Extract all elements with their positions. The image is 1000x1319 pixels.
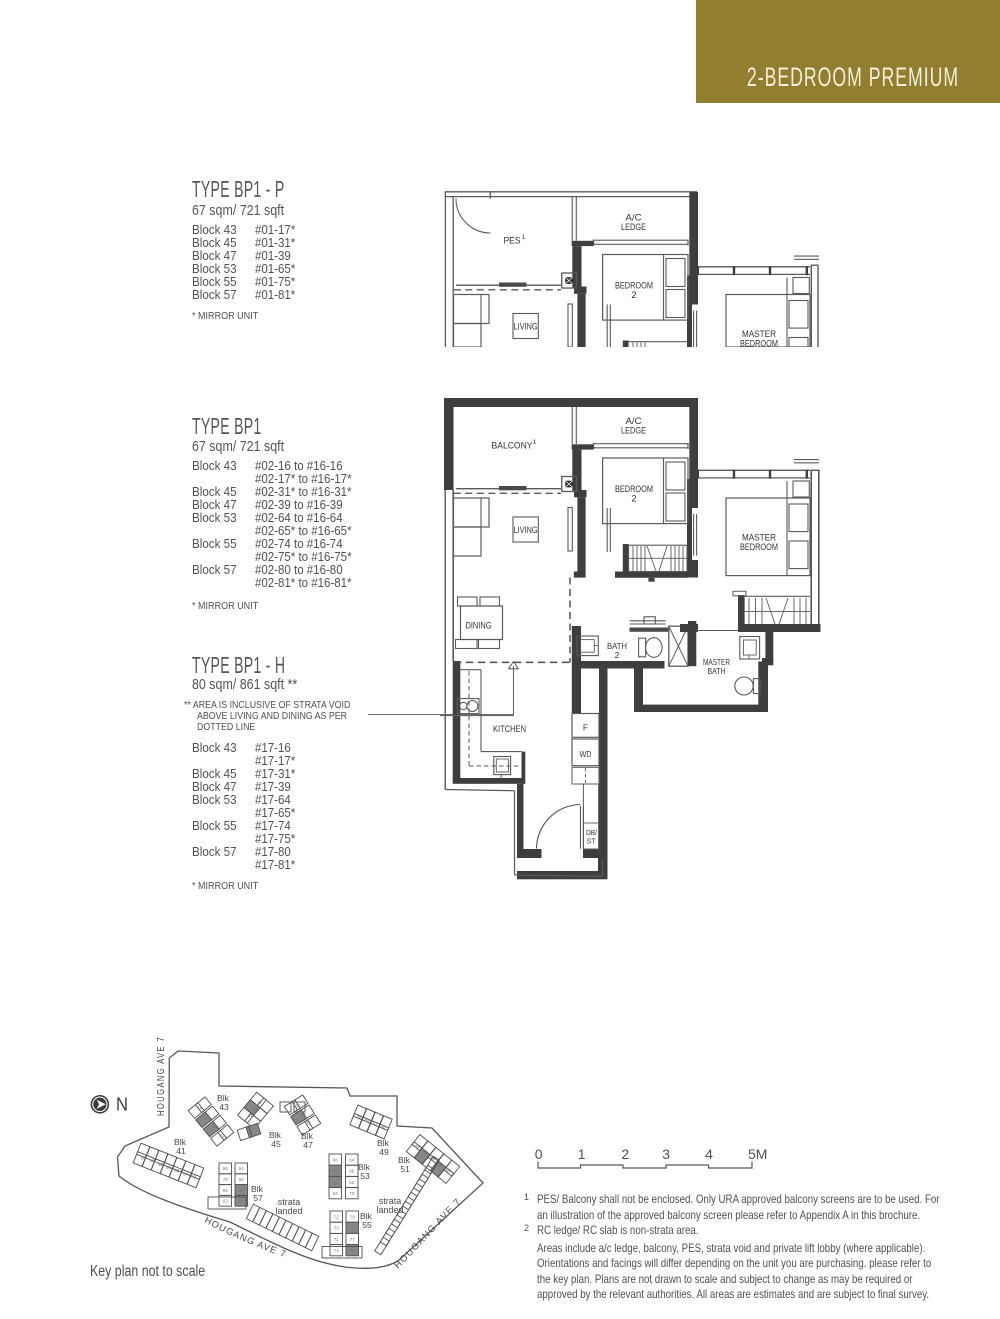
svg-text:0: 0: [535, 1146, 543, 1162]
svg-text:71: 71: [334, 1237, 340, 1242]
svg-text:LIVING: LIVING: [514, 525, 538, 535]
svg-text:36: 36: [295, 1103, 300, 1108]
svg-text:HOUGANG AVE 7: HOUGANG AVE 7: [203, 1215, 288, 1260]
svg-text:56: 56: [223, 1166, 229, 1171]
svg-text:5M: 5M: [748, 1146, 767, 1162]
svg-text:2: 2: [631, 290, 636, 300]
svg-text:BEDROOM: BEDROOM: [615, 484, 653, 494]
svg-text:38: 38: [301, 1112, 306, 1117]
svg-text:44: 44: [357, 1115, 362, 1120]
svg-text:2: 2: [631, 494, 636, 504]
svg-text:67: 67: [239, 1199, 245, 1204]
svg-text:A/C: A/C: [626, 416, 642, 426]
svg-text:2: 2: [621, 1146, 629, 1162]
svg-text:66: 66: [333, 1158, 339, 1163]
svg-text:landed: landed: [376, 1205, 403, 1215]
svg-text:47: 47: [303, 1140, 313, 1150]
svg-text:48: 48: [381, 1124, 386, 1129]
svg-text:15: 15: [205, 1115, 210, 1120]
svg-text:LEDGE: LEDGE: [621, 222, 646, 232]
svg-text:02: 02: [175, 1168, 180, 1173]
svg-text:A/C: A/C: [626, 213, 642, 223]
svg-text:BEDROOM: BEDROOM: [740, 339, 778, 348]
svg-text:N: N: [116, 1094, 128, 1115]
svg-text:MASTER: MASTER: [742, 533, 776, 543]
svg-text:22: 22: [220, 1133, 225, 1138]
svg-text:BALCONY: BALCONY: [492, 441, 533, 451]
svg-text:BEDROOM: BEDROOM: [740, 542, 778, 552]
svg-text:81: 81: [415, 1144, 420, 1149]
svg-text:3: 3: [662, 1146, 670, 1162]
svg-text:65: 65: [333, 1180, 339, 1185]
svg-text:49: 49: [379, 1147, 389, 1157]
svg-text:55: 55: [362, 1220, 372, 1230]
svg-text:04: 04: [183, 1171, 188, 1176]
svg-text:64: 64: [349, 1158, 355, 1163]
svg-text:69: 69: [349, 1169, 355, 1174]
svg-text:LIVING: LIVING: [514, 322, 538, 332]
svg-text:73: 73: [334, 1226, 340, 1231]
svg-text:59: 59: [423, 1150, 428, 1155]
svg-text:67: 67: [333, 1169, 339, 1174]
svg-text:53: 53: [360, 1171, 370, 1181]
svg-text:95: 95: [166, 1165, 171, 1170]
svg-text:98: 98: [158, 1162, 163, 1167]
svg-text:78: 78: [223, 1177, 229, 1182]
svg-text:03: 03: [191, 1174, 196, 1179]
svg-text:06: 06: [141, 1156, 146, 1161]
svg-text:29: 29: [253, 1107, 258, 1112]
svg-text:HOUGANG AVE 7: HOUGANG AVE 7: [156, 1036, 167, 1116]
svg-text:57: 57: [253, 1193, 263, 1203]
svg-text:WD: WD: [580, 749, 592, 759]
svg-text:16: 16: [197, 1106, 202, 1111]
svg-text:41: 41: [176, 1146, 186, 1156]
svg-text:BEDROOM: BEDROOM: [615, 281, 653, 291]
svg-text:DINING: DINING: [466, 621, 492, 631]
svg-text:landed: landed: [275, 1206, 302, 1216]
svg-text:55: 55: [223, 1188, 229, 1193]
svg-text:31: 31: [248, 1113, 253, 1118]
svg-text:21: 21: [212, 1124, 217, 1129]
svg-text:F: F: [583, 723, 588, 733]
svg-text:07: 07: [149, 1159, 154, 1164]
svg-text:77: 77: [350, 1237, 356, 1242]
svg-text:78: 78: [350, 1248, 356, 1253]
svg-text:72: 72: [334, 1215, 340, 1220]
svg-text:4: 4: [705, 1146, 713, 1162]
svg-text:54: 54: [239, 1166, 245, 1171]
svg-text:60: 60: [239, 1188, 245, 1193]
svg-text:45: 45: [271, 1139, 281, 1149]
svg-text:51: 51: [400, 1164, 410, 1174]
svg-text:1: 1: [533, 439, 537, 446]
svg-text:63: 63: [333, 1191, 339, 1196]
svg-text:PES: PES: [504, 236, 521, 246]
svg-text:63: 63: [223, 1199, 229, 1204]
svg-text:45: 45: [365, 1118, 370, 1123]
svg-text:2: 2: [615, 650, 620, 660]
svg-text:57: 57: [438, 1162, 443, 1167]
svg-text:76: 76: [350, 1226, 356, 1231]
svg-text:56: 56: [446, 1168, 451, 1173]
svg-text:BATH: BATH: [708, 666, 726, 676]
svg-text:43: 43: [219, 1102, 229, 1112]
svg-text:LEDGE: LEDGE: [621, 426, 646, 436]
svg-text:MASTER: MASTER: [742, 329, 776, 339]
svg-text:39: 39: [306, 1121, 311, 1126]
svg-text:70: 70: [349, 1191, 355, 1196]
svg-text:27: 27: [257, 1100, 262, 1105]
svg-text:65: 65: [239, 1177, 245, 1182]
svg-text:1: 1: [578, 1146, 586, 1162]
svg-text:1: 1: [522, 234, 526, 241]
svg-text:ST: ST: [587, 837, 597, 846]
svg-text:79: 79: [350, 1215, 356, 1220]
svg-text:74: 74: [334, 1248, 340, 1253]
svg-text:47: 47: [373, 1121, 378, 1126]
svg-text:62: 62: [349, 1180, 355, 1185]
svg-text:KITCHEN: KITCHEN: [493, 724, 526, 734]
